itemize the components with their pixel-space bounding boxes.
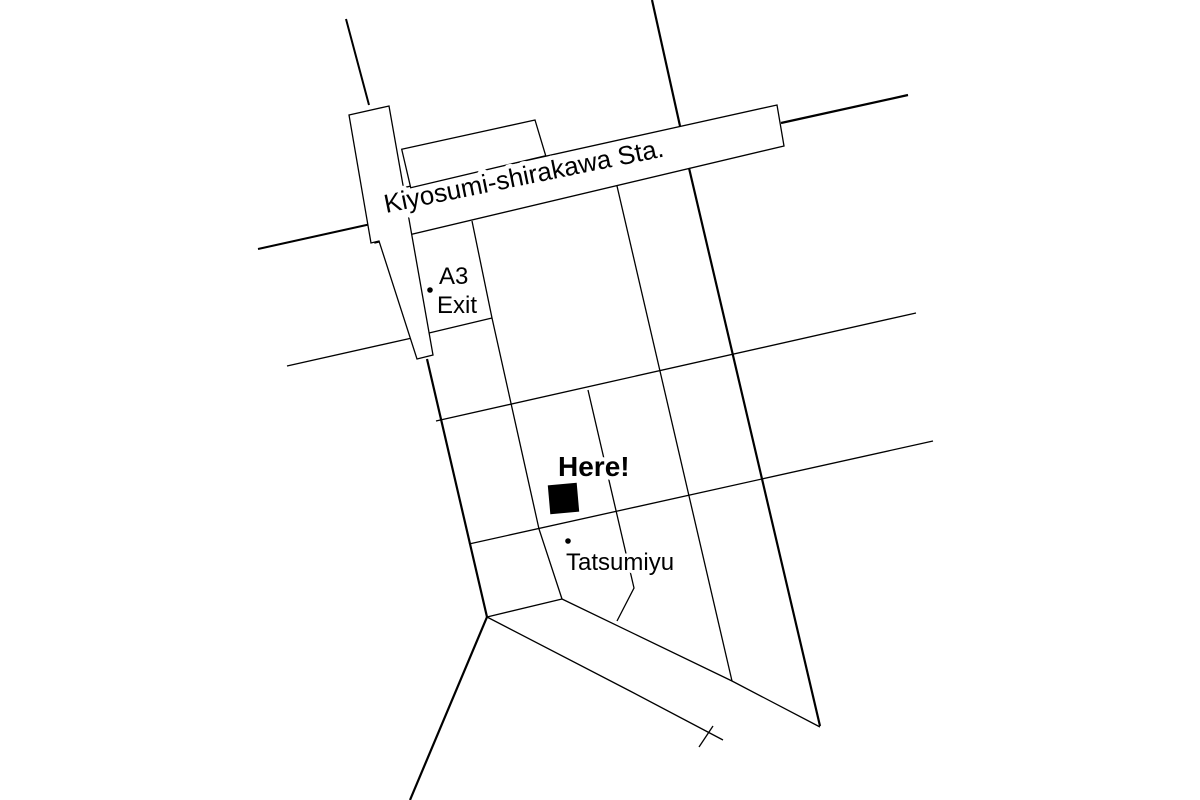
river-band-top [562,599,820,727]
exit-a3-dot [427,287,433,293]
road-northeast [781,95,908,123]
road-main-south [689,168,820,726]
access-map: Kiyosumi-shirakawa Sta. A3 Exit Here! Ta… [0,0,1200,800]
road-southwest [410,617,487,800]
river-band-cap [487,599,562,617]
river-band-bottom [487,617,723,740]
exit-a3-label-line2: Exit [437,292,477,319]
map-canvas: Kiyosumi-shirakawa Sta. A3 Exit Here! Ta… [0,0,1200,800]
road-center [427,359,487,617]
road-top-left [346,19,369,105]
road-cross-lower [469,441,933,544]
road-exit-block-south [429,318,492,333]
road-west-upper [258,224,371,249]
road-block-east [617,186,732,681]
here-label: Here! [558,451,630,482]
here-square-marker [548,483,579,514]
road-block-middle [588,390,634,621]
tatsumiyu-label: Tatsumiyu [566,549,674,576]
tatsumiyu-dot [565,538,571,544]
exit-a3-label-line1: A3 [439,263,468,290]
road-west-lower [287,338,412,366]
road-main-north [652,0,680,126]
road-cross-upper [436,313,916,421]
